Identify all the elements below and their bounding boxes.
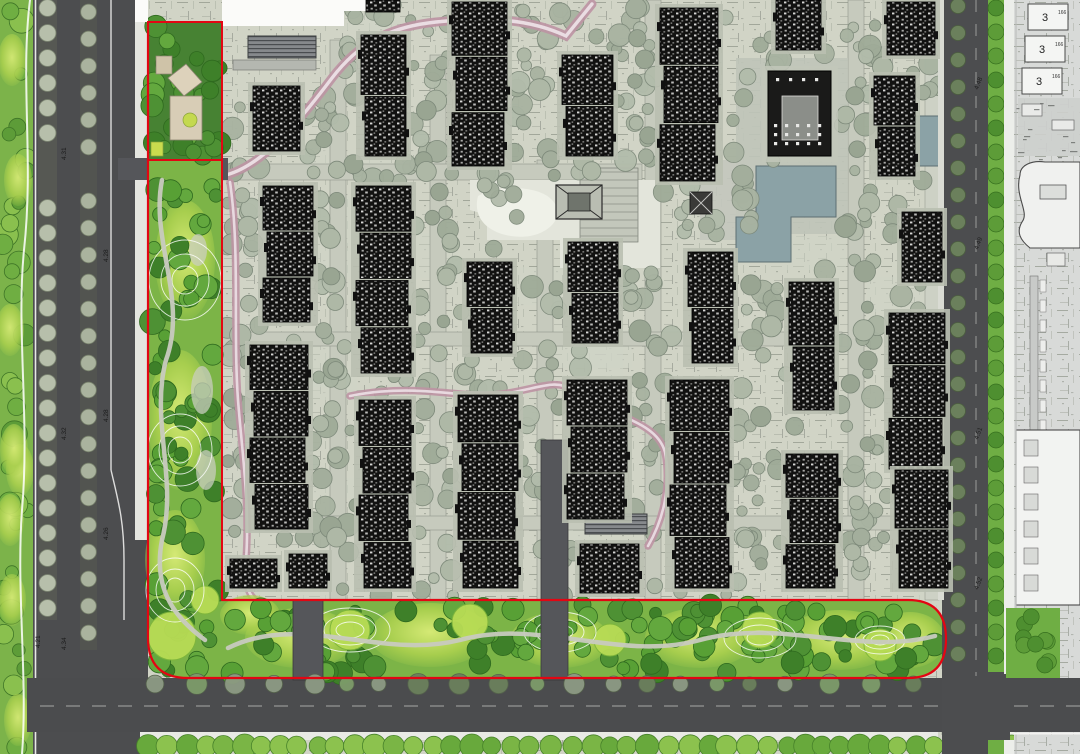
svg-text:4.28: 4.28 [103, 409, 110, 422]
svg-text:166: 166 [1058, 10, 1067, 16]
svg-text:4.28: 4.28 [103, 249, 110, 262]
svg-text:3: 3 [1042, 12, 1048, 24]
svg-text:4.31: 4.31 [61, 147, 68, 160]
svg-text:3: 3 [1036, 76, 1042, 88]
svg-text:166: 166 [1055, 42, 1064, 48]
svg-text:4.34: 4.34 [61, 637, 68, 650]
svg-text:4.21: 4.21 [35, 635, 42, 648]
svg-text:4.26: 4.26 [103, 527, 110, 540]
svg-text:4.32: 4.32 [61, 427, 68, 440]
svg-text:3: 3 [1039, 44, 1045, 56]
svg-text:166: 166 [1052, 74, 1061, 80]
